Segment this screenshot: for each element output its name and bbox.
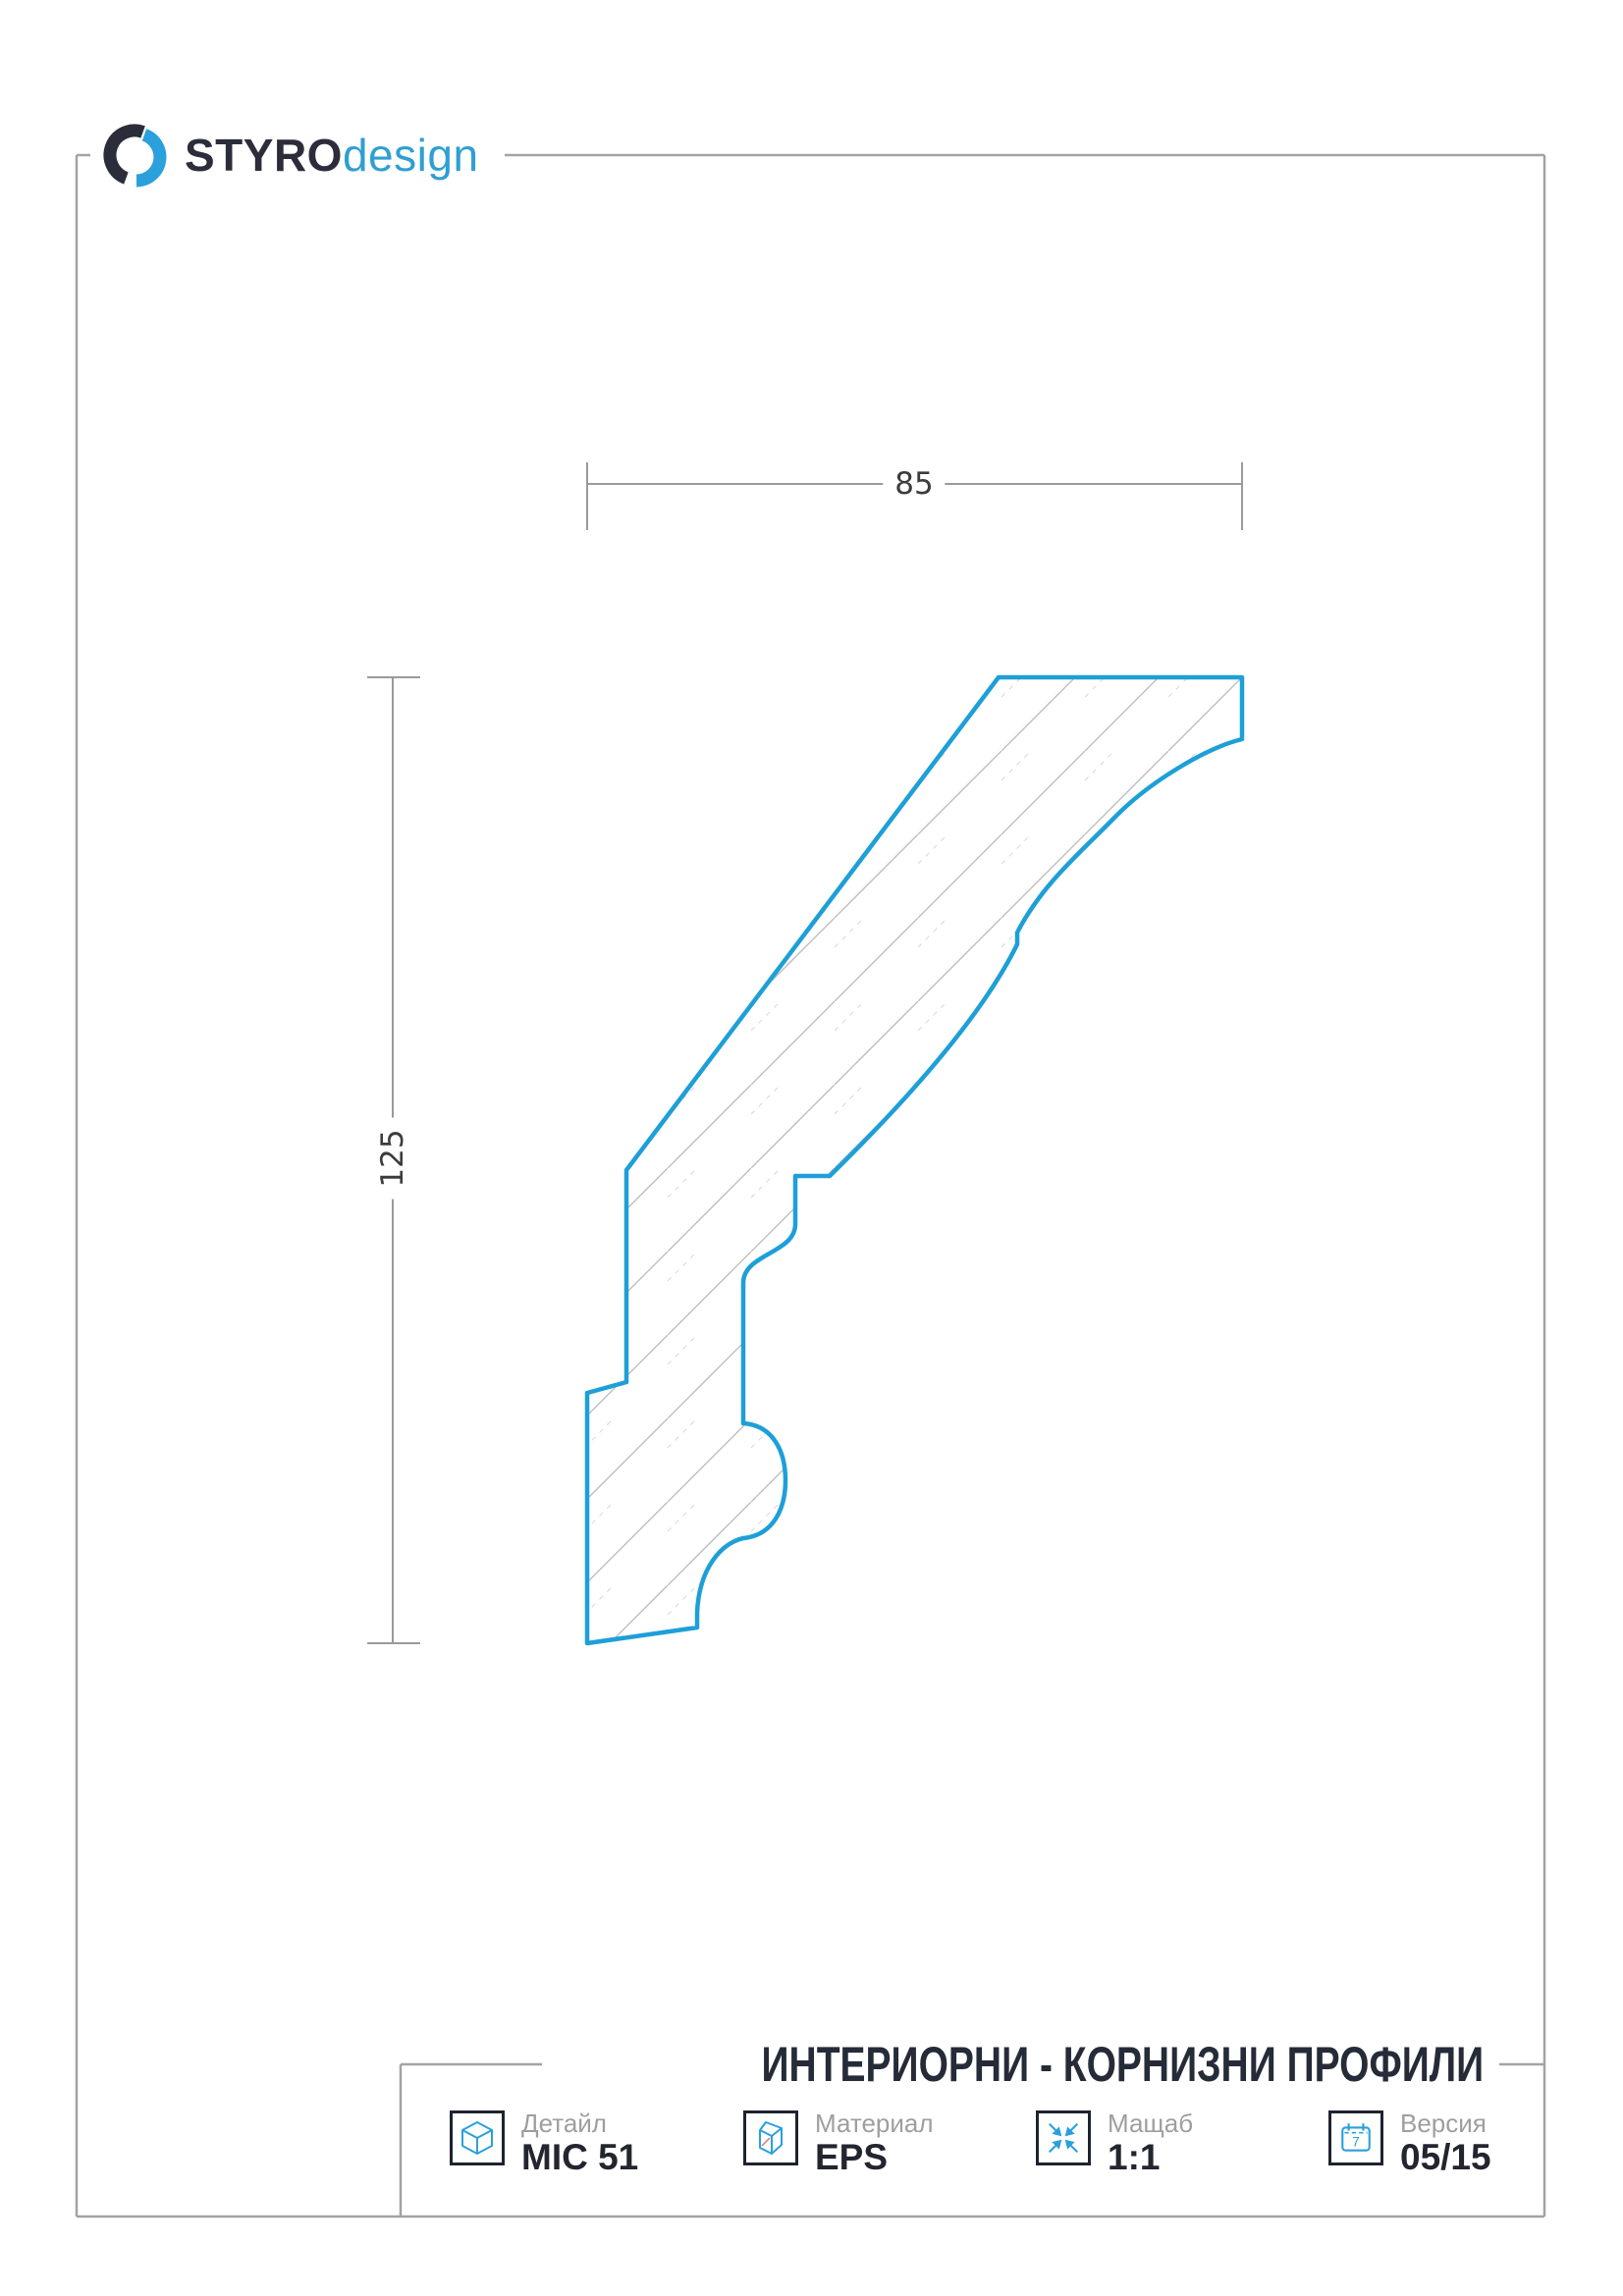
detail-cube-icon xyxy=(459,2119,496,2157)
drawing-sheet: { "brand": { "name_bold": "STYRO", "name… xyxy=(0,0,1623,2296)
version-icon-box: 7 xyxy=(1328,2110,1383,2165)
sheet-canvas xyxy=(0,0,1623,2296)
material-label: Материал xyxy=(815,2110,934,2137)
scale-label: Мащаб xyxy=(1108,2110,1193,2137)
profile-outline xyxy=(587,677,1242,1643)
brand-name-bold: STYRO xyxy=(185,130,343,181)
dim-height-label: 125 xyxy=(373,1117,412,1199)
material-cube-icon xyxy=(752,2119,789,2157)
info-cell-version: 7 Версия 05/15 xyxy=(1328,2110,1491,2178)
detail-value: MIC 51 xyxy=(521,2138,638,2178)
brand-name-light: design xyxy=(343,130,479,181)
scale-value: 1:1 xyxy=(1108,2138,1193,2178)
info-cell-detail: Детайл MIC 51 xyxy=(450,2110,638,2178)
version-label: Версия xyxy=(1400,2110,1491,2137)
calendar-digit: 7 xyxy=(1352,2134,1360,2149)
info-cell-material: Материал EPS xyxy=(743,2110,934,2178)
brand-logo: STYROdesign xyxy=(90,114,505,196)
version-value: 05/15 xyxy=(1400,2138,1491,2178)
scale-arrows-icon xyxy=(1045,2119,1082,2157)
sheet-title: ИНТЕРИОРНИ - КОРНИЗНИ ПРОФИЛИ xyxy=(542,2034,1499,2095)
brand-name: STYROdesign xyxy=(185,133,479,178)
logo-mark-icon xyxy=(100,121,169,189)
material-icon-box xyxy=(743,2110,798,2165)
detail-label: Детайл xyxy=(521,2110,638,2137)
info-cell-scale: Мащаб 1:1 xyxy=(1036,2110,1193,2178)
material-value: EPS xyxy=(815,2138,934,2178)
detail-icon-box xyxy=(450,2110,505,2165)
calendar-icon: 7 xyxy=(1337,2119,1375,2157)
page-frame xyxy=(77,155,1544,2216)
cornice-profile-drawing xyxy=(587,677,1242,1643)
scale-icon-box xyxy=(1036,2110,1091,2165)
sheet-title-text: ИНТЕРИОРНИ - КОРНИЗНИ ПРОФИЛИ xyxy=(761,2036,1484,2093)
dim-width-label: 85 xyxy=(883,464,945,504)
